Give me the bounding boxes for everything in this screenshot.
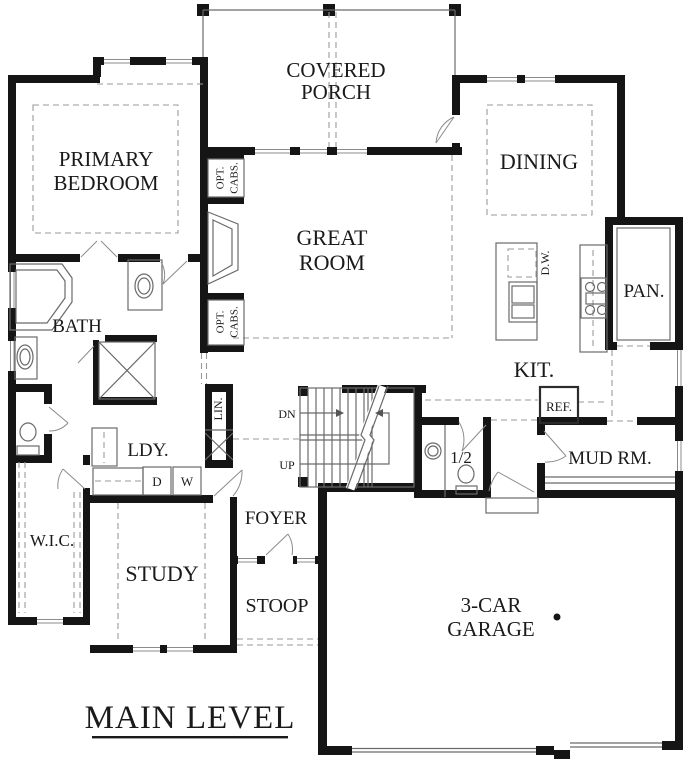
dashed-lines [19, 12, 650, 645]
label-dishwasher: D.W. [538, 251, 552, 276]
toilet-icon [17, 423, 39, 455]
label-dining: DINING [500, 149, 578, 174]
label-great-room-1: GREAT [297, 225, 368, 250]
dishwasher-outline [508, 249, 536, 277]
window-wic-south [37, 617, 63, 625]
label-garage-1: 3-CAR [461, 593, 522, 617]
label-pantry: PAN. [623, 281, 664, 302]
door-hall-foyer [214, 470, 242, 496]
label-great-room-2: ROOM [299, 250, 365, 275]
label-half-bath: 1/2 [450, 448, 472, 467]
floor-plan-svg: COVERED PORCH PRIMARY BEDROOM DINING GRE… [0, 0, 684, 768]
half-bath-sink-icon [425, 443, 441, 459]
label-covered-porch-2: PORCH [301, 80, 371, 104]
kitchen-island-icon [496, 243, 537, 340]
floor-plan: COVERED PORCH PRIMARY BEDROOM DINING GRE… [0, 0, 684, 768]
label-linen: LIN. [211, 398, 225, 421]
window-greatroom-north [255, 147, 367, 155]
label-kitchen: KIT. [514, 357, 555, 382]
half-bath-toilet-icon [456, 465, 477, 494]
garage-door-lines [352, 743, 662, 752]
stair-break-mask [350, 386, 382, 489]
mudroom-bench [545, 477, 675, 483]
door-front [266, 534, 292, 555]
label-stairs-up: UP [279, 458, 295, 472]
label-stairs-down: DN [278, 407, 296, 421]
label-dryer: D [152, 474, 161, 489]
walls [8, 4, 683, 759]
garage-column-dot [554, 614, 561, 621]
bath-sink-left-icon [15, 337, 37, 379]
label-laundry: LDY. [127, 440, 168, 461]
title-underline [92, 736, 288, 738]
door-bedroom-double [81, 241, 117, 257]
door-water-closet [49, 407, 68, 431]
label-refrigerator: REF. [546, 399, 572, 414]
stairs [300, 386, 414, 489]
door-mud-room [544, 431, 566, 462]
door-wic [58, 469, 85, 489]
fireplace-icon [208, 212, 238, 284]
label-wic: W.I.C. [30, 531, 74, 550]
door-bedroom-hall [161, 261, 187, 284]
plan-title: MAIN LEVEL [85, 700, 296, 736]
label-primary-bedroom-2: BEDROOM [53, 171, 158, 195]
label-stoop: STOOP [246, 595, 309, 617]
window-front-sidelights [238, 556, 315, 564]
label-opt-cabs-lower-1: OPT. [215, 310, 227, 333]
label-study: STUDY [125, 561, 198, 586]
garage-step [486, 498, 538, 513]
label-opt-cabs-upper-1: OPT. [215, 166, 227, 189]
label-opt-cabs-lower-2: CABS. [229, 306, 241, 338]
label-washer: W [181, 474, 194, 489]
shower-icon [99, 342, 155, 399]
door-shower [78, 346, 94, 363]
label-mud-room: MUD RM. [568, 448, 651, 469]
label-covered-porch-1: COVERED [286, 58, 385, 82]
door-garage-entry [489, 472, 534, 492]
label-garage-2: GARAGE [447, 617, 535, 641]
label-foyer: FOYER [245, 508, 308, 529]
bath-sink-right-icon [128, 260, 162, 310]
door-porch-dining [436, 117, 454, 143]
stair-arrows [300, 409, 389, 464]
door-half-bath [459, 422, 486, 451]
label-primary-bedroom-1: PRIMARY [59, 147, 154, 171]
label-bath: BATH [52, 316, 102, 337]
label-opt-cabs-upper-2: CABS. [229, 162, 241, 194]
